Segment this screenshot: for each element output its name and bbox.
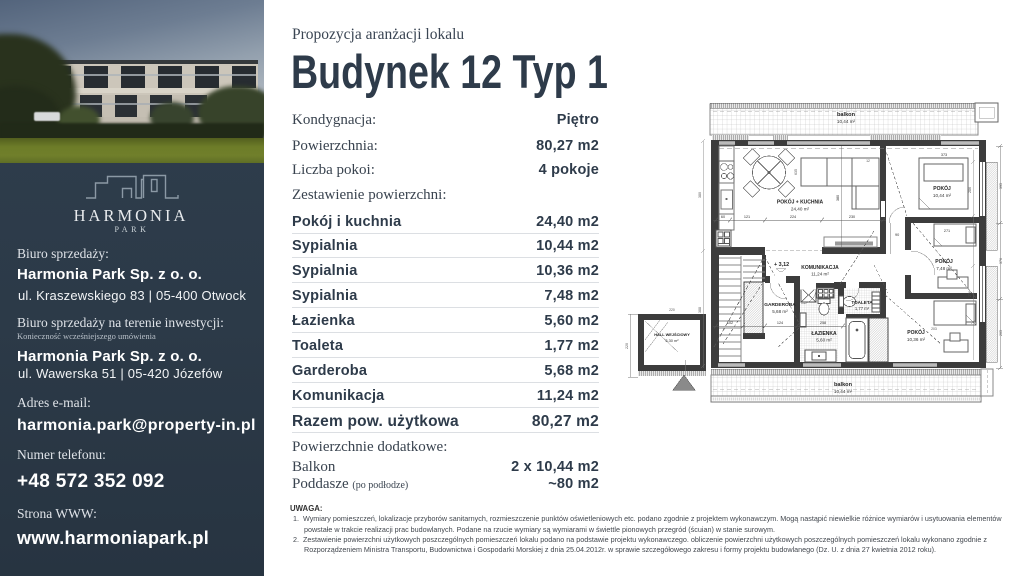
svg-text:5,68 m²: 5,68 m² [772,309,788,314]
svg-text:10,44 m²: 10,44 m² [837,119,856,124]
svg-text:258: 258 [820,321,826,325]
svg-text:POKÓJ: POKÓJ [935,257,953,265]
svg-text:380: 380 [836,195,840,201]
svg-text:11,24 m²: 11,24 m² [811,272,829,277]
svg-text:380: 380 [698,192,702,198]
svg-text:GARDEROBA: GARDEROBA [764,302,796,308]
svg-text:102: 102 [727,321,733,325]
svg-text:230: 230 [849,215,855,219]
svg-text:10,44 m²: 10,44 m² [834,389,853,394]
svg-text:HALL WEJŚCIOWY: HALL WEJŚCIOWY [654,332,690,337]
svg-text:PARK: PARK [114,225,149,234]
svg-text:271: 271 [944,229,950,233]
svg-text:5,60 m²: 5,60 m² [816,338,832,343]
svg-text:10,44 m²: 10,44 m² [933,193,952,198]
svg-text:121: 121 [744,215,750,219]
svg-text:395: 395 [999,183,1003,189]
svg-text:90: 90 [895,233,899,237]
svg-text:286: 286 [968,187,972,193]
svg-text:376: 376 [999,258,1003,264]
svg-text:224: 224 [790,215,796,219]
svg-text:220: 220 [669,308,675,312]
svg-text:388: 388 [698,307,702,313]
svg-text:ŁAZIENKA: ŁAZIENKA [811,331,837,337]
svg-text:220: 220 [625,343,629,349]
svg-text:KOMUNIKACJA: KOMUNIKACJA [801,265,839,271]
svg-text:TOALETA: TOALETA [851,300,873,305]
svg-text:POKÓJ + KUCHNIA: POKÓJ + KUCHNIA [777,198,824,206]
svg-text:203: 203 [931,327,937,331]
svg-text:1,77 m²: 1,77 m² [855,306,870,311]
svg-text:276: 276 [968,291,972,297]
svg-text:373: 373 [941,153,947,157]
svg-text:POKÓJ: POKÓJ [907,328,925,336]
svg-text:balkon: balkon [834,382,853,388]
svg-text:POKÓJ: POKÓJ [933,184,951,192]
svg-text:24,40 m²: 24,40 m² [791,207,810,212]
svg-text:+ 3,12: + 3,12 [774,262,789,268]
svg-text:124: 124 [777,321,783,325]
svg-text:10,36 m²: 10,36 m² [907,337,926,342]
svg-text:205: 205 [999,330,1003,336]
svg-text:7,48 m²: 7,48 m² [936,266,952,271]
svg-text:60: 60 [721,215,725,219]
svg-text:635: 635 [794,169,798,175]
svg-text:balkon: balkon [837,112,856,118]
svg-text:HARMONIA: HARMONIA [74,206,189,225]
svg-text:12: 12 [866,159,870,163]
svg-text:3,30 m²: 3,30 m² [665,338,679,343]
